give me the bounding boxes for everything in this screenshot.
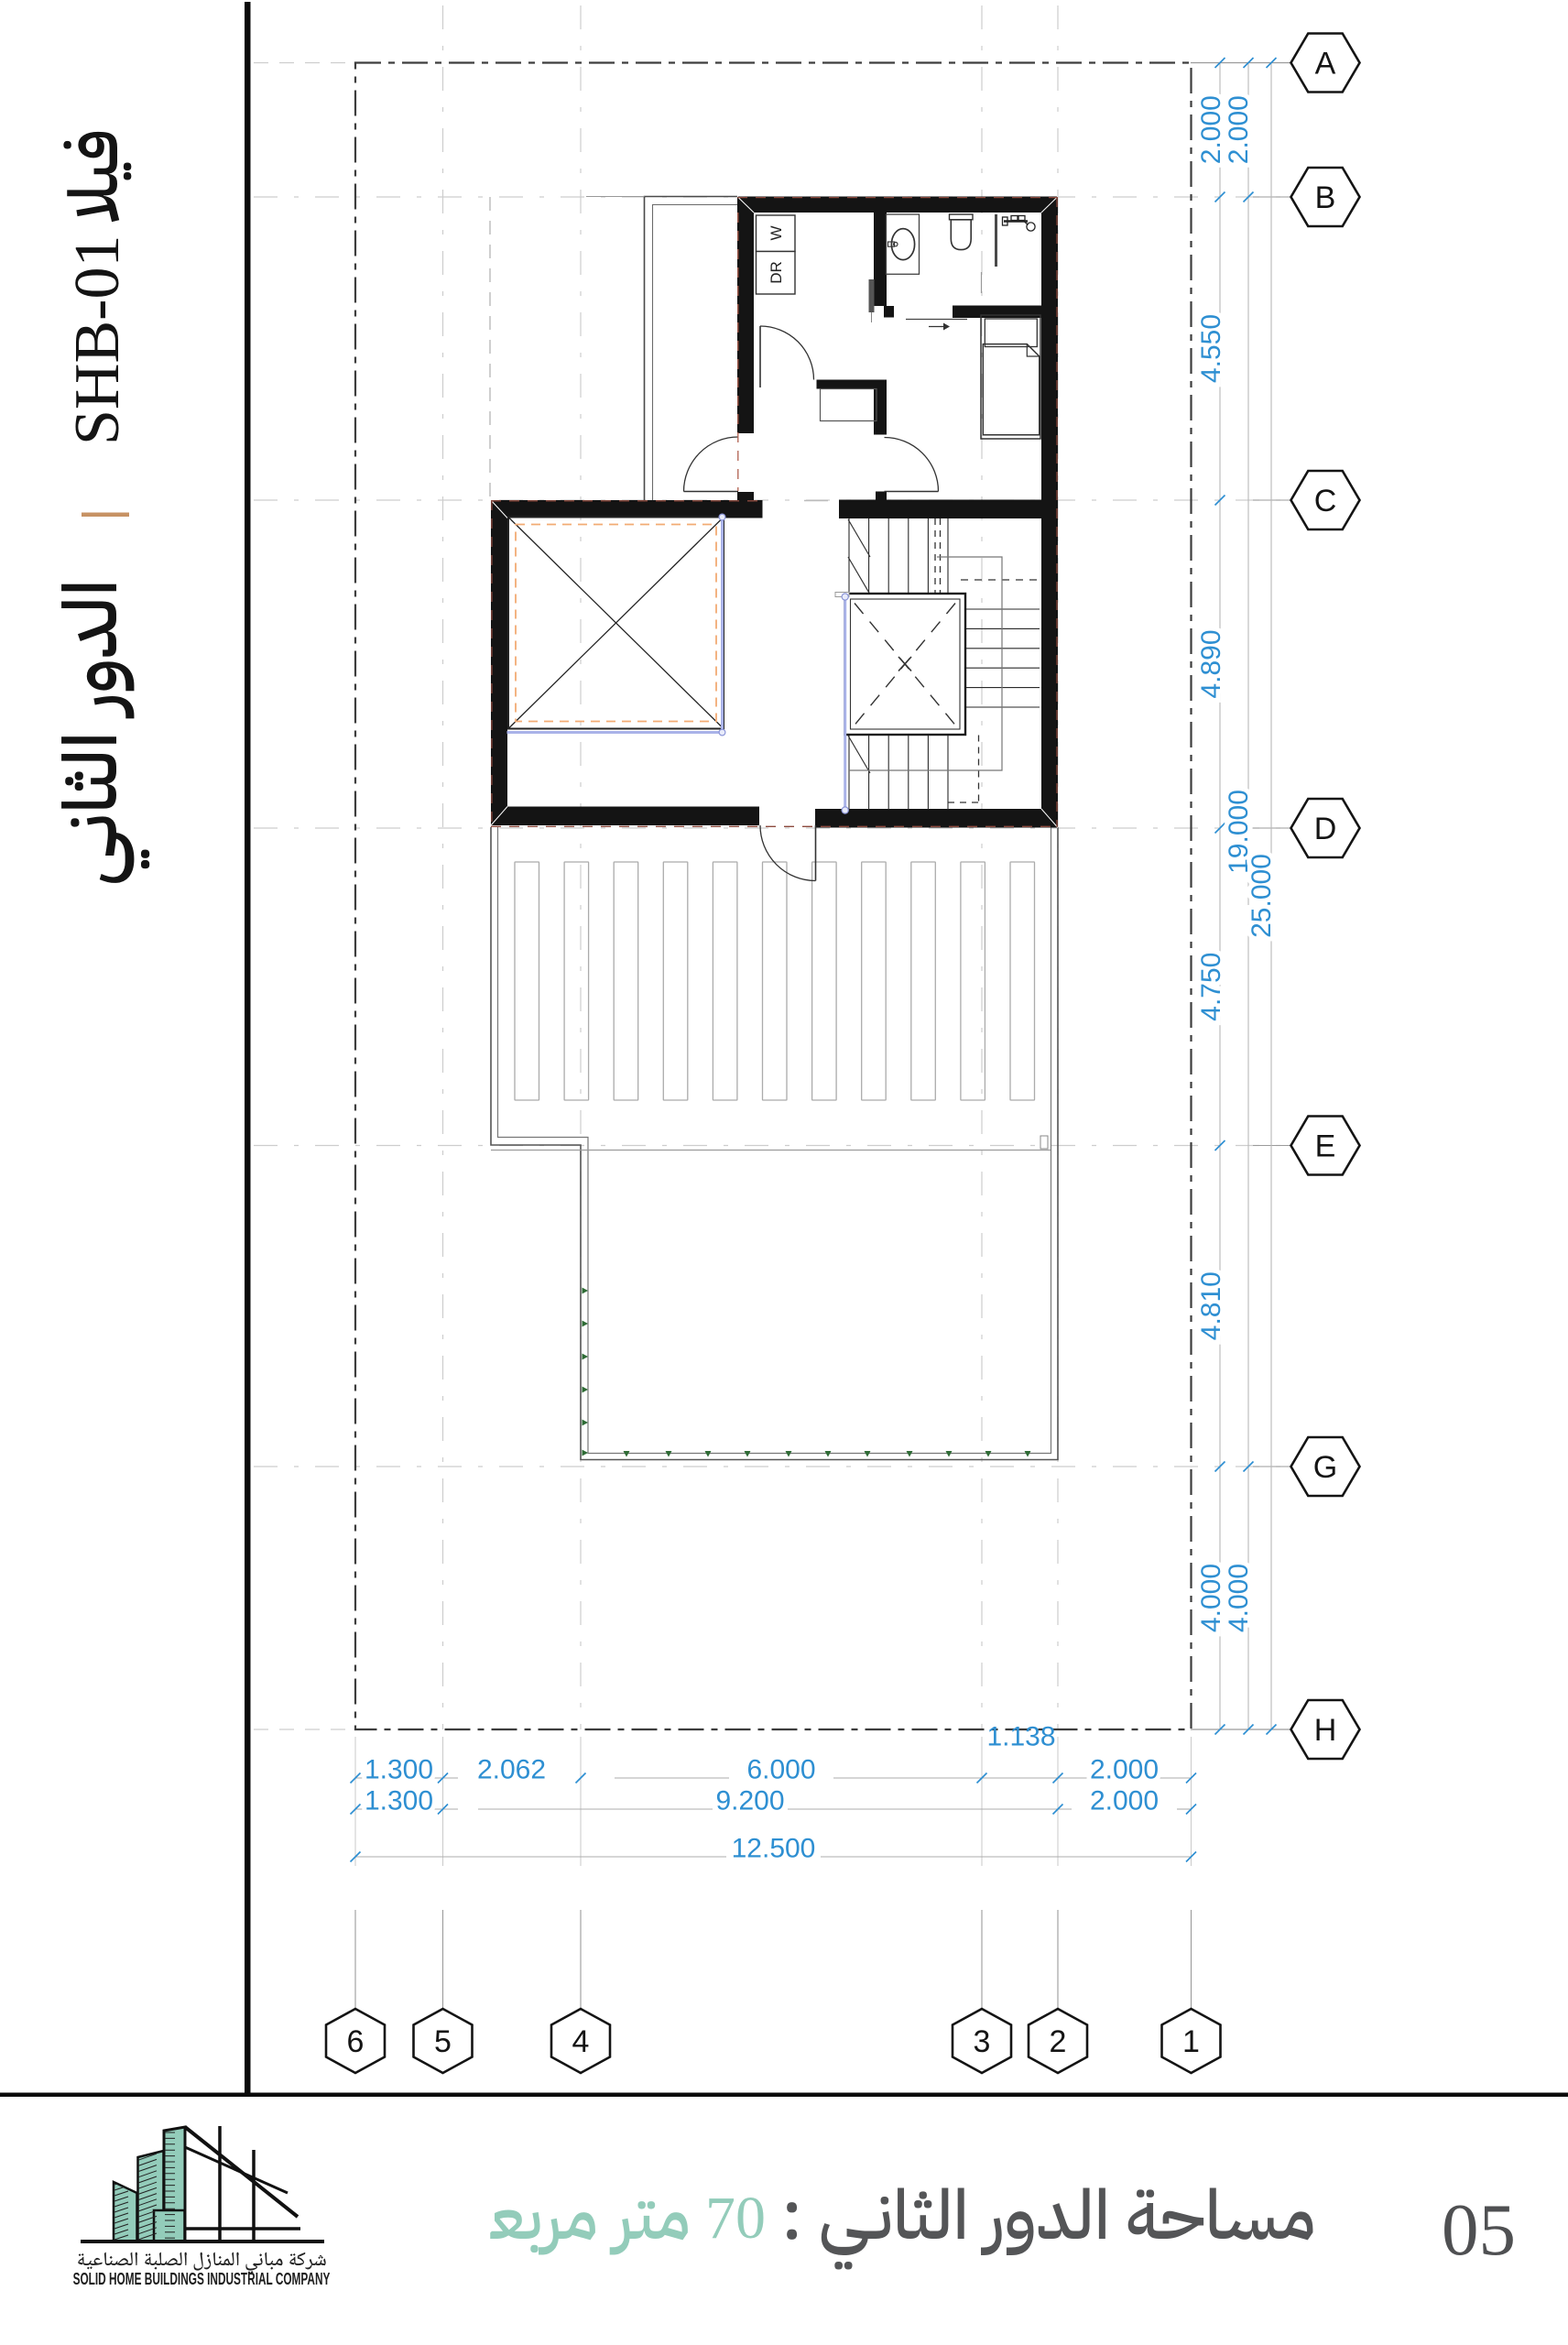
svg-text:2.000: 2.000 [1090,1786,1159,1816]
svg-text:E: E [1315,1129,1336,1164]
svg-text:W: W [768,225,785,240]
svg-text:4.550: 4.550 [1196,314,1226,383]
svg-text:G: G [1313,1450,1337,1485]
svg-text:5: 5 [434,2024,452,2059]
svg-text:D: D [1314,812,1337,846]
svg-text:B: B [1315,180,1336,215]
svg-text:1.138: 1.138 [986,1722,1055,1752]
svg-text:DR: DR [768,261,785,284]
svg-text:2.062: 2.062 [477,1755,546,1785]
svg-text:3: 3 [974,2024,991,2059]
svg-text:2: 2 [1050,2024,1067,2059]
svg-text:4: 4 [572,2024,590,2059]
svg-text:6.000: 6.000 [746,1755,815,1785]
svg-text:2.000: 2.000 [1090,1755,1159,1785]
svg-text:6: 6 [347,2024,365,2059]
svg-text:25.000: 25.000 [1247,854,1277,938]
svg-text:4.810: 4.810 [1196,1271,1226,1340]
svg-text:9.200: 9.200 [715,1786,784,1816]
svg-text:SOLID HOME BUILDINGS INDUSTRIA: SOLID HOME BUILDINGS INDUSTRIAL COMPANY [73,2271,331,2289]
svg-text:4.000: 4.000 [1196,1564,1226,1632]
svg-text:4.750: 4.750 [1196,953,1226,1021]
svg-text:12.500: 12.500 [732,1834,816,1864]
svg-text:05: 05 [1442,2188,1516,2271]
svg-text:2.000: 2.000 [1224,95,1254,164]
svg-text:C: C [1314,484,1337,518]
svg-text:1: 1 [1182,2024,1200,2059]
svg-text:SHB-01: SHB-01 [62,235,133,445]
svg-text:1.300: 1.300 [365,1786,433,1816]
svg-text:1.300: 1.300 [365,1755,433,1785]
svg-text:2.000: 2.000 [1196,95,1226,164]
svg-text:70: 70 [705,2185,766,2252]
svg-text:H: H [1314,1713,1337,1748]
svg-text:4.000: 4.000 [1224,1564,1254,1632]
svg-text:A: A [1315,47,1336,82]
svg-text:4.890: 4.890 [1196,629,1226,698]
